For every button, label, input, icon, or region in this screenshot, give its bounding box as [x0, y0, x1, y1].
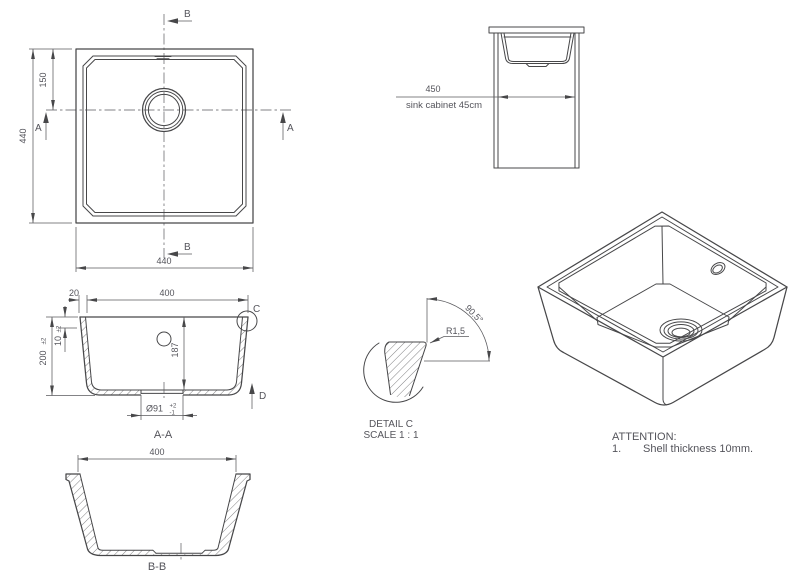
- dim-150-label: 150: [38, 72, 48, 87]
- dim-drain-tol-plus: +2: [170, 404, 178, 410]
- cabinet-walls: [494, 33, 579, 168]
- marker-a-right-label: A: [287, 123, 294, 134]
- detail-c-view: 90.5° R1,5 DETAIL C SCALE 1 : 1: [363, 298, 490, 441]
- dim-drain-tol-minus: -1: [170, 411, 176, 417]
- plan-view: B B A A 440 150: [18, 9, 294, 272]
- attention-note: ATTENTION: 1. Shell thickness 10mm.: [612, 431, 753, 455]
- marker-b-top-label: B: [184, 9, 191, 20]
- dim-10-label: 10: [53, 336, 63, 346]
- dim-20-label: 20: [69, 288, 79, 298]
- dim-10: 10 ±2: [53, 306, 77, 352]
- marker-a-left-label: A: [35, 123, 42, 134]
- detail-balloon-c-label: C: [253, 304, 260, 315]
- iso-overflow-hole: [709, 260, 727, 277]
- detail-wall-hatch: [385, 342, 426, 397]
- iso-front-edge: [663, 357, 667, 405]
- dim-drain-label: Ø91: [146, 404, 163, 414]
- dim-400-aa-label: 400: [159, 288, 174, 298]
- dim-20: 20: [68, 288, 79, 313]
- marker-b-bottom-label: B: [184, 242, 191, 253]
- countertop: [489, 27, 584, 33]
- cabinet-sink-bowl: [501, 33, 574, 67]
- sink-technical-drawing: B B A A 440 150: [0, 0, 800, 579]
- dim-450-label: 450: [425, 84, 440, 94]
- bb-inner-contour: [80, 474, 236, 550]
- dim-drain-diameter: Ø91 +2 -1: [127, 395, 197, 420]
- isometric-view: [538, 212, 787, 405]
- section-aa-view: 20 400 10 ±2 200 ±2 187: [38, 288, 266, 441]
- aa-overflow-hole: [157, 332, 171, 346]
- dim-187-label: 187: [170, 342, 180, 357]
- attention-heading: ATTENTION:: [612, 431, 677, 443]
- aa-drain-recess: [141, 389, 183, 397]
- attention-item-number: 1.: [612, 443, 621, 455]
- dim-radius: R1,5: [430, 326, 469, 343]
- dim-200-tol: ±2: [42, 337, 48, 344]
- bowl-opening-edge: [83, 56, 246, 216]
- dim-150: 150: [38, 49, 53, 110]
- sink-outer-edge: [76, 49, 253, 223]
- dim-400-bb-label: 400: [149, 447, 164, 457]
- section-bb-title: B-B: [148, 561, 166, 573]
- dim-10-tol: ±2: [57, 325, 63, 332]
- cabinet-view: 450 sink cabinet 45cm: [396, 27, 584, 168]
- direction-arrow-d-label: D: [259, 391, 266, 402]
- dim-radius-label: R1,5: [446, 326, 465, 336]
- bowl-inner-edge: [87, 60, 243, 213]
- section-marker-a-right: A: [280, 112, 294, 140]
- dim-200-label: 200: [38, 350, 48, 365]
- dim-440-bottom-label: 440: [156, 256, 171, 266]
- overflow-slot: [155, 57, 171, 59]
- cabinet-size-label: sink cabinet 45cm: [406, 100, 482, 111]
- section-bb-view: 400 B-B: [66, 447, 250, 573]
- dim-400-aa: 400: [87, 288, 248, 313]
- bb-shell-hatch: [66, 474, 250, 556]
- detail-c-scale: SCALE 1 : 1: [363, 430, 418, 441]
- dim-450: 450 sink cabinet 45cm: [396, 84, 575, 111]
- iso-bowl-corner-edges: [559, 227, 766, 322]
- iso-drain: [660, 319, 702, 341]
- aa-inner-contour: [86, 317, 243, 390]
- iso-bowl-bottom: [597, 284, 729, 347]
- drawing-sheet: B B A A 440 150: [0, 0, 800, 579]
- attention-item-text: Shell thickness 10mm.: [643, 443, 753, 455]
- dim-440-left-label: 440: [18, 128, 28, 143]
- detail-c-title: DETAIL C: [369, 419, 413, 430]
- section-marker-a-left: A: [35, 112, 49, 140]
- section-marker-b-top: B: [167, 9, 192, 24]
- dim-187: 187: [170, 317, 184, 390]
- bb-drain-notch: [153, 543, 205, 561]
- section-marker-b-bottom: B: [167, 242, 192, 257]
- section-aa-title: A-A: [154, 429, 173, 441]
- dim-440-bottom: 440: [76, 227, 253, 272]
- direction-arrow-d: D: [249, 383, 266, 409]
- dim-angle-label: 90.5°: [463, 303, 485, 325]
- dim-400-bb: 400: [78, 447, 236, 472]
